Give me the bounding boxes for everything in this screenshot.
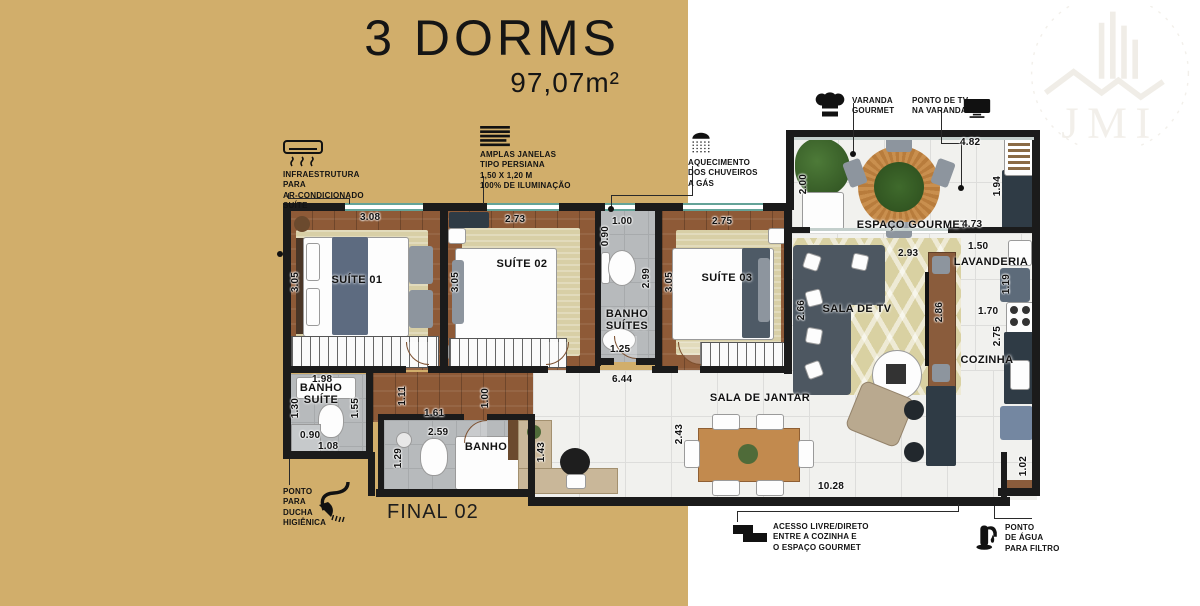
jmi-logo-text: JMI [1061, 98, 1158, 146]
plan-title-block: 3 DORMS 97,07m² [336, 12, 620, 99]
dining-chair-top-a [712, 414, 740, 430]
stool-b [904, 442, 924, 462]
dim-banho-depth: 1.29 [393, 448, 404, 468]
label-banho-suites: BANHO SUÍTES [598, 308, 656, 332]
wall-suites-bottom-a [291, 366, 406, 373]
callout-windows: AMPLAS JANELAS TIPO PERSIANA 1,50 x 1,20… [480, 150, 580, 192]
callout-agua: PONTO DE ÁGUA PARA FILTRO [1005, 523, 1075, 554]
burner-d [1022, 318, 1030, 326]
dim-suite3-width: 2.75 [712, 216, 732, 227]
burner-c [1010, 318, 1018, 326]
dresser-suite-02 [449, 212, 489, 228]
pillow-suite-01-b [306, 288, 320, 326]
tv-icon [963, 98, 991, 123]
varanda-side-table [802, 192, 844, 230]
tv-screen [925, 272, 929, 366]
dim-banho-suite-left: 1.30 [290, 398, 301, 418]
handheld-shower-icon [316, 480, 354, 527]
leader-tv-c [961, 143, 962, 187]
callout-acesso: ACESSO LIVRE/DIRETO ENTRE A COZINHA E O … [773, 522, 893, 553]
dining-chair-bottom-a [712, 480, 740, 496]
dim-cozinha-width: 1.70 [978, 306, 998, 317]
plan-title: 3 DORMS [336, 12, 620, 65]
dim-banho-suite-right: 1.55 [350, 398, 361, 418]
ac-unit-icon [283, 140, 323, 173]
dim-banho-width: 2.59 [428, 427, 448, 438]
faucet-icon [976, 520, 1002, 555]
coffee-table-book [886, 364, 906, 384]
blanket-suite-01 [332, 237, 368, 335]
wall-right [1032, 130, 1040, 492]
wall-banho-suite3 [655, 210, 662, 370]
dining-table-plant [738, 444, 758, 464]
varanda-table-plant [874, 162, 924, 212]
shower-banho [396, 432, 412, 448]
dim-banho-suite-shower: 0.90 [300, 430, 320, 441]
dim-suite2-depth: 3.05 [450, 272, 461, 292]
plan-area: 97,07m² [336, 67, 620, 99]
wall-banho-bottom [376, 489, 534, 497]
leader-varanda-dot [850, 151, 856, 157]
varanda-glass-rail [794, 137, 1034, 140]
grill-grate [1008, 140, 1030, 170]
dim-varanda-left: 2.00 [798, 174, 809, 194]
wall-varanda-bottom-a [792, 227, 810, 233]
wall-banho-top-a [378, 414, 464, 420]
wall-varanda-left [786, 130, 794, 210]
dim-jantar-depth: 2.43 [674, 424, 685, 444]
dim-suite3-depth: 3.05 [664, 272, 675, 292]
label-espaco-gourmet: ESPAÇO GOURMET [852, 219, 972, 231]
dim-lavanderia-depth: 1.19 [1001, 274, 1012, 294]
wall-suites-bottom-e [700, 366, 790, 373]
nightstand-suite-02-a [448, 228, 466, 244]
stool-a [904, 400, 924, 420]
office-chair [560, 448, 590, 476]
jmi-logo-watermark: JMI [1022, 6, 1198, 146]
tv-rack-box-bottom [932, 364, 950, 382]
dining-chair-right [798, 440, 814, 468]
wall-recess-bottom [998, 488, 1040, 496]
dining-chair-bottom-b [756, 480, 784, 496]
leader-ducha [289, 459, 290, 485]
dining-chair-top-b [756, 414, 784, 430]
pillow-suite-03 [758, 258, 770, 322]
label-sala-jantar: SALA DE JANTAR [700, 392, 820, 404]
jmi-buildings-icon: JMI [1022, 6, 1198, 146]
leader-agua-b [994, 518, 1032, 519]
chef-hat-icon [815, 90, 845, 123]
dim-hall-2: 1.61 [424, 408, 444, 419]
toilet-banho-suite [318, 404, 344, 438]
ottoman-suite-01-b [409, 290, 433, 328]
dim-suite1-depth: 3.05 [290, 272, 301, 292]
steps-icon [733, 522, 767, 549]
wall-banho-suite-right [366, 372, 373, 456]
label-lavanderia: LAVANDERIA [946, 256, 1036, 268]
dim-hall-3: 1.00 [480, 388, 491, 408]
wall-suites-bottom-c [566, 366, 600, 373]
wall-banho-suite-bottom [283, 451, 373, 459]
label-suite-01: SUÍTE 01 [322, 274, 392, 286]
wall-suite3-living [784, 203, 792, 374]
leader-acesso-a [737, 512, 738, 522]
burner-b [1022, 306, 1030, 314]
dim-jantar-length: 10.28 [818, 481, 844, 492]
wall-banho-right [528, 414, 535, 498]
dim-banho-suites-depth: 2.99 [641, 268, 652, 288]
dim-varanda-top: 4.82 [960, 137, 980, 148]
dim-hall-1: 1.11 [397, 386, 408, 406]
blinds-icon [480, 126, 510, 152]
window-suite-03 [683, 203, 763, 211]
dining-chair-left [684, 440, 700, 468]
kitchen-island [926, 386, 956, 466]
dim-hall-length: 6.44 [612, 374, 632, 385]
side-table-suite-01 [294, 216, 310, 232]
pillow-suite-01-a [306, 243, 320, 281]
leader-acesso-c [958, 504, 959, 512]
dim-banho-suites-nook: 0.90 [600, 226, 611, 246]
grill-counter [1002, 170, 1036, 232]
toilet-banho [420, 438, 448, 476]
dim-gourmet-width: 4.73 [962, 219, 982, 230]
callout-ac: INFRAESTRUTURA PARA AR-CONDICIONADO SUÍT… [283, 170, 373, 212]
label-cozinha: COZINHA [952, 354, 1022, 366]
wall-varanda-top [786, 130, 1039, 137]
label-suite-03: SUÍTE 03 [692, 272, 762, 284]
sofa-pillow-c [805, 327, 824, 346]
dim-suite2-width: 2.73 [505, 214, 525, 225]
dim-lavanderia-width: 1.50 [968, 241, 988, 252]
laptop [566, 474, 586, 489]
leader-acesso-b [737, 511, 959, 512]
dim-suite1-width: 3.08 [360, 212, 380, 223]
label-sala-tv: SALA DE TV [812, 303, 902, 315]
ottoman-suite-01-a [409, 246, 433, 284]
callout-gas: AQUECIMENTO DOS CHUVEIROS A GÁS [688, 158, 778, 189]
dim-banho-suites-top: 1.00 [612, 216, 632, 227]
label-suite-02: SUÍTE 02 [487, 258, 557, 270]
kitchen-cart [1000, 406, 1033, 440]
dim-varanda-right: 1.94 [992, 176, 1003, 196]
leader-tv-dot [958, 185, 964, 191]
burner-a [1010, 306, 1018, 314]
wall-corridor-step [368, 452, 375, 496]
wall-banho-left [378, 416, 384, 496]
sofa-pillow-e [851, 253, 870, 272]
unit-label: FINAL 02 [387, 501, 479, 524]
dim-banho-suites-width: 1.25 [610, 344, 630, 355]
dim-tv-width: 2.93 [898, 248, 918, 259]
window-suite-02 [487, 203, 559, 211]
dim-desk-depth: 1.43 [536, 442, 547, 462]
label-banho: BANHO [458, 441, 514, 453]
floorplan-page: JMI 3 DORMS 97,07m² [0, 0, 1200, 606]
toilet-banho-suites [608, 250, 636, 286]
dim-cozinha-depth: 2.75 [992, 326, 1003, 346]
dim-banho-suite-bottom: 1.08 [318, 441, 338, 452]
dim-tv-left: 2.66 [796, 300, 807, 320]
leader-gas-dot [608, 206, 614, 212]
wall-suite1-suite2 [440, 210, 448, 370]
leader-tv-b [941, 143, 962, 144]
wall-bottom-main [528, 497, 1010, 506]
leader-gas-b [611, 195, 693, 196]
dim-banho-suite-top: 1.98 [312, 374, 332, 385]
dim-recess: 1.02 [1018, 456, 1029, 476]
leader-ac-dot [277, 251, 283, 257]
wall-banho-top-b [487, 414, 534, 420]
dim-tv-right: 2.86 [934, 302, 945, 322]
